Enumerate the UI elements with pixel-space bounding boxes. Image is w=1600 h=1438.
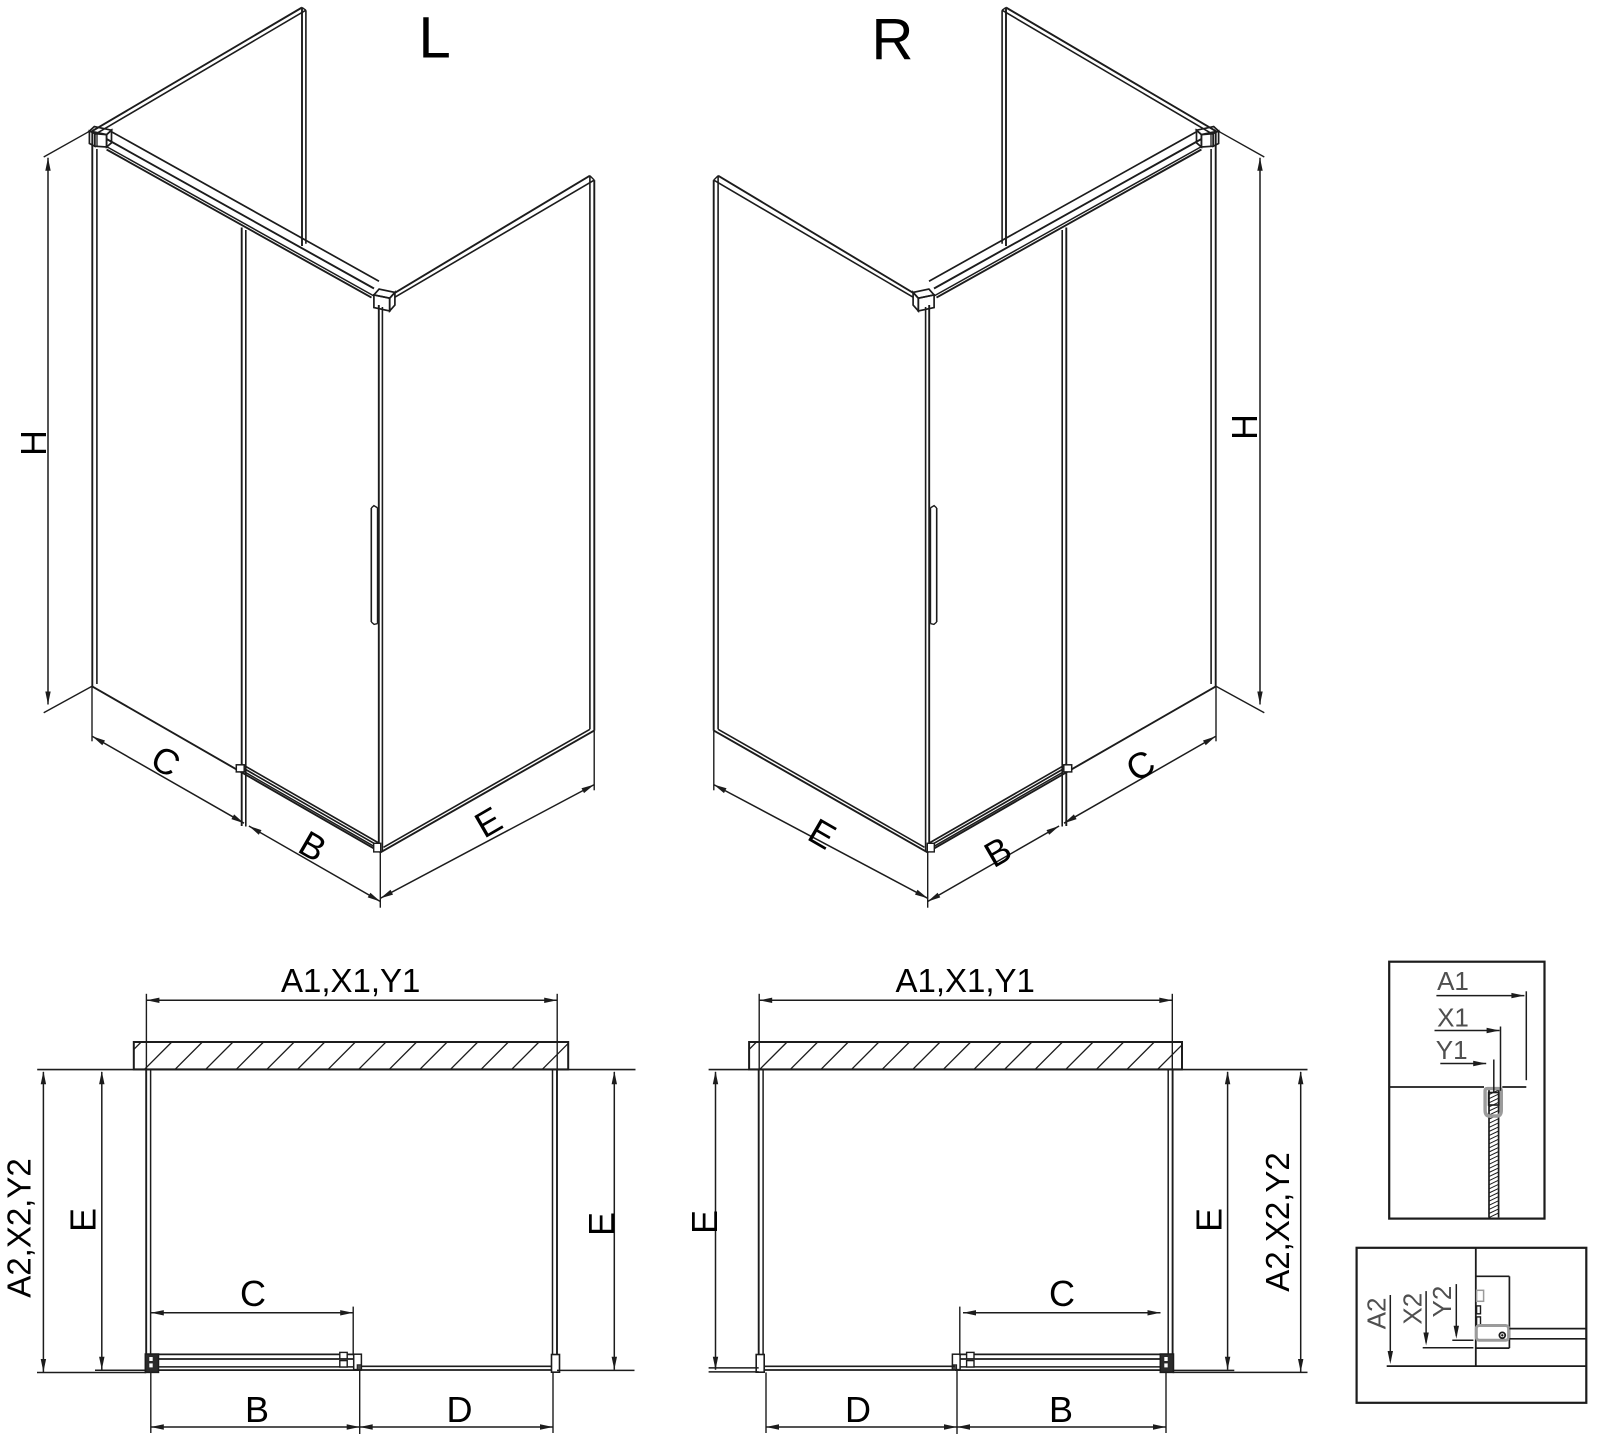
svg-text:A1,X1,Y1: A1,X1,Y1 xyxy=(281,962,420,999)
svg-text:A1: A1 xyxy=(1437,966,1469,996)
svg-text:Y1: Y1 xyxy=(1436,1035,1468,1065)
svg-text:C: C xyxy=(240,1273,266,1314)
svg-text:E: E xyxy=(63,1208,104,1232)
svg-text:X2: X2 xyxy=(1397,1293,1427,1325)
svg-text:B: B xyxy=(245,1389,269,1430)
svg-text:D: D xyxy=(845,1389,871,1430)
svg-text:C: C xyxy=(1049,1273,1075,1314)
svg-text:B: B xyxy=(1049,1389,1073,1430)
svg-text:A2,X2,Y2: A2,X2,Y2 xyxy=(1,1158,38,1297)
svg-text:H: H xyxy=(13,430,54,456)
svg-text:A1,X1,Y1: A1,X1,Y1 xyxy=(895,962,1034,999)
svg-text:A2: A2 xyxy=(1362,1297,1392,1329)
svg-text:Y2: Y2 xyxy=(1427,1286,1457,1318)
svg-text:E: E xyxy=(684,1210,725,1234)
svg-text:A2,X2,Y2: A2,X2,Y2 xyxy=(1259,1152,1296,1291)
svg-text:R: R xyxy=(872,7,914,72)
svg-text:X1: X1 xyxy=(1437,1002,1469,1032)
svg-text:L: L xyxy=(419,6,451,71)
svg-text:E: E xyxy=(581,1212,622,1236)
svg-text:H: H xyxy=(1224,414,1265,440)
svg-text:E: E xyxy=(1189,1208,1230,1232)
svg-text:D: D xyxy=(447,1389,473,1430)
